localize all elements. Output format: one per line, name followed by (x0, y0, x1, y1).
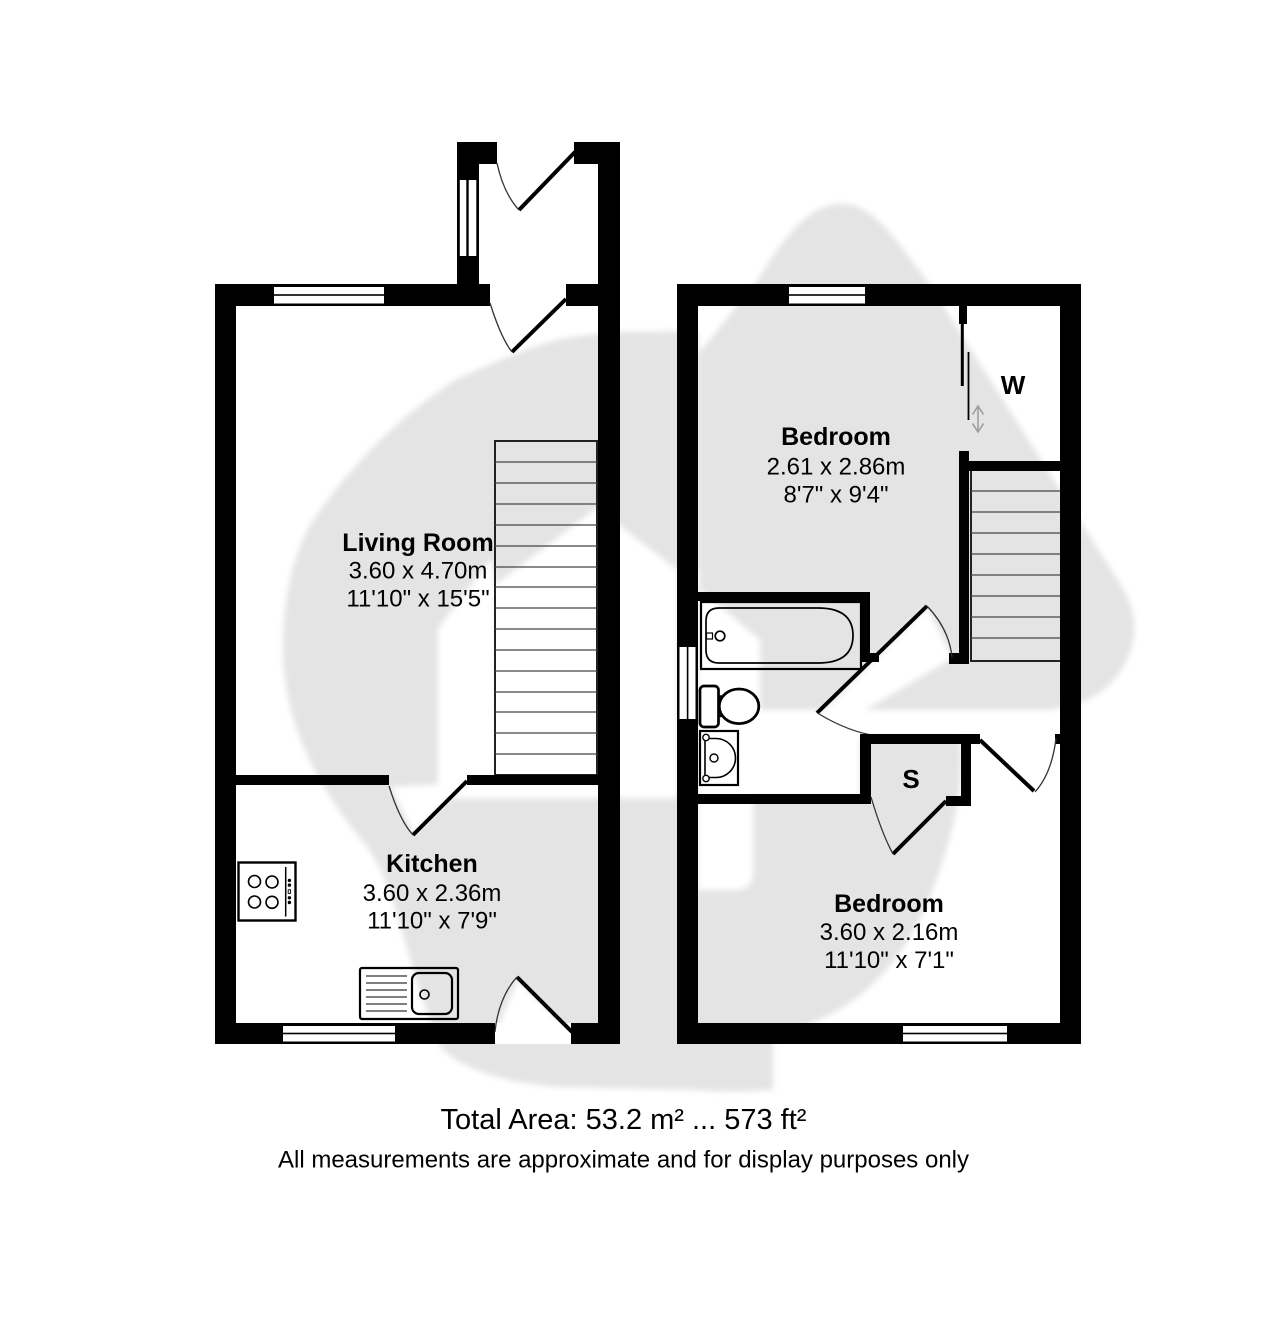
svg-text:3.60 x 2.16m: 3.60 x 2.16m (820, 919, 959, 946)
svg-text:11'10" x 7'1": 11'10" x 7'1" (824, 947, 954, 974)
svg-text:Kitchen: Kitchen (386, 850, 478, 878)
svg-text:11'10" x 15'5": 11'10" x 15'5" (346, 586, 489, 613)
svg-text:8'7" x 9'4": 8'7" x 9'4" (784, 482, 889, 509)
svg-text:3.60 x 2.36m: 3.60 x 2.36m (363, 880, 502, 907)
svg-text:11'10" x 7'9": 11'10" x 7'9" (367, 908, 497, 935)
svg-text:Living Room: Living Room (342, 529, 493, 557)
svg-text:Bedroom: Bedroom (834, 890, 944, 918)
svg-text:3.60 x 4.70m: 3.60 x 4.70m (349, 558, 488, 585)
svg-text:2.61 x 2.86m: 2.61 x 2.86m (767, 454, 906, 481)
svg-text:S: S (902, 764, 919, 794)
svg-text:All measurements are approxima: All measurements are approximate and for… (278, 1147, 969, 1174)
svg-text:Total Area: 53.2 m² ... 573 ft: Total Area: 53.2 m² ... 573 ft² (441, 1104, 807, 1136)
svg-text:W: W (1001, 370, 1026, 400)
svg-text:Bedroom: Bedroom (781, 423, 891, 451)
